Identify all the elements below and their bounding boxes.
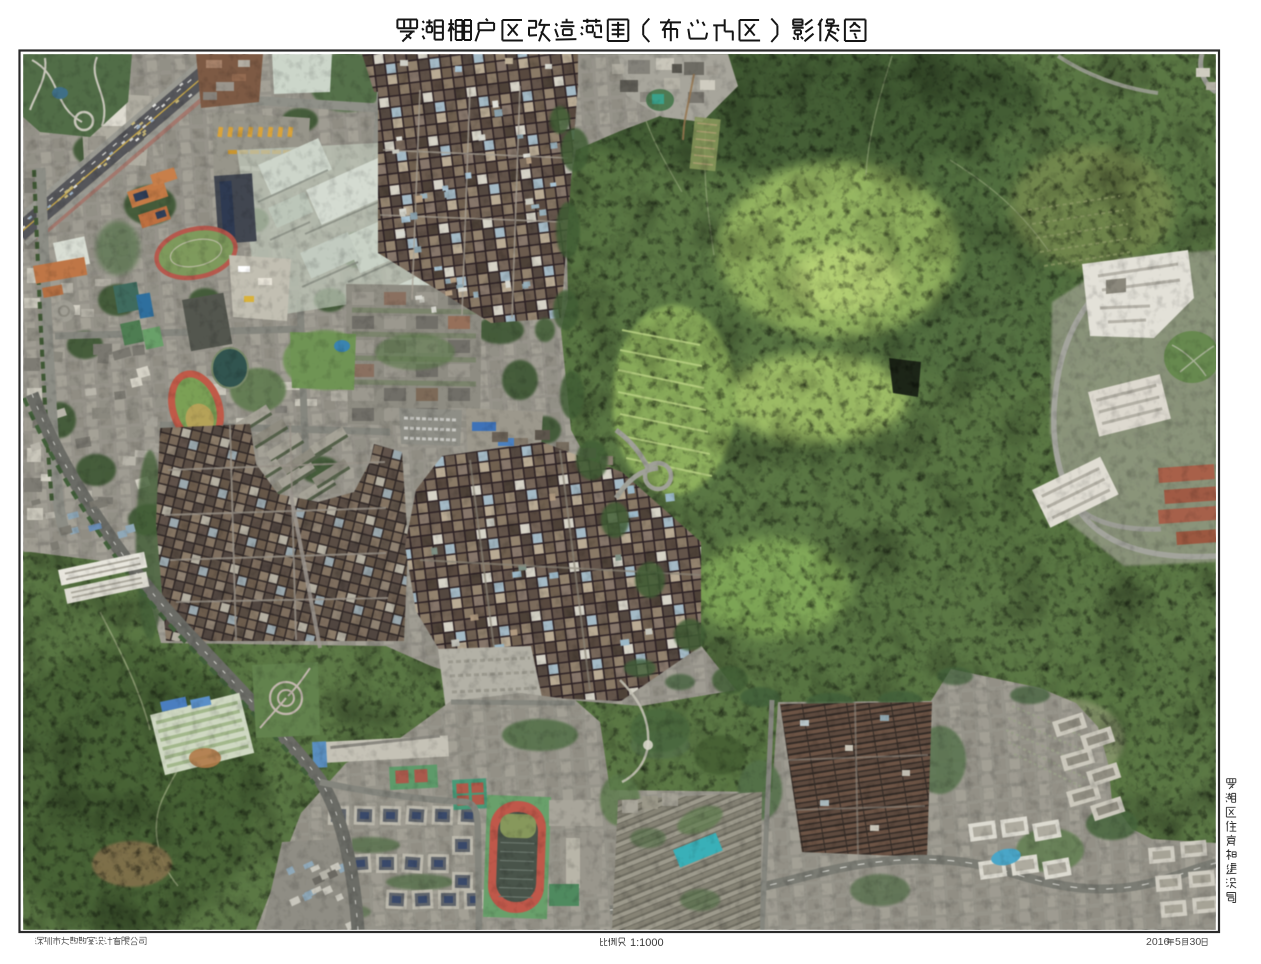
svg-text:1:1000: 1:1000 <box>630 937 664 949</box>
svg-text:5: 5 <box>1175 936 1181 948</box>
svg-text:30: 30 <box>1190 936 1202 948</box>
svg-text:2016: 2016 <box>1146 936 1170 948</box>
